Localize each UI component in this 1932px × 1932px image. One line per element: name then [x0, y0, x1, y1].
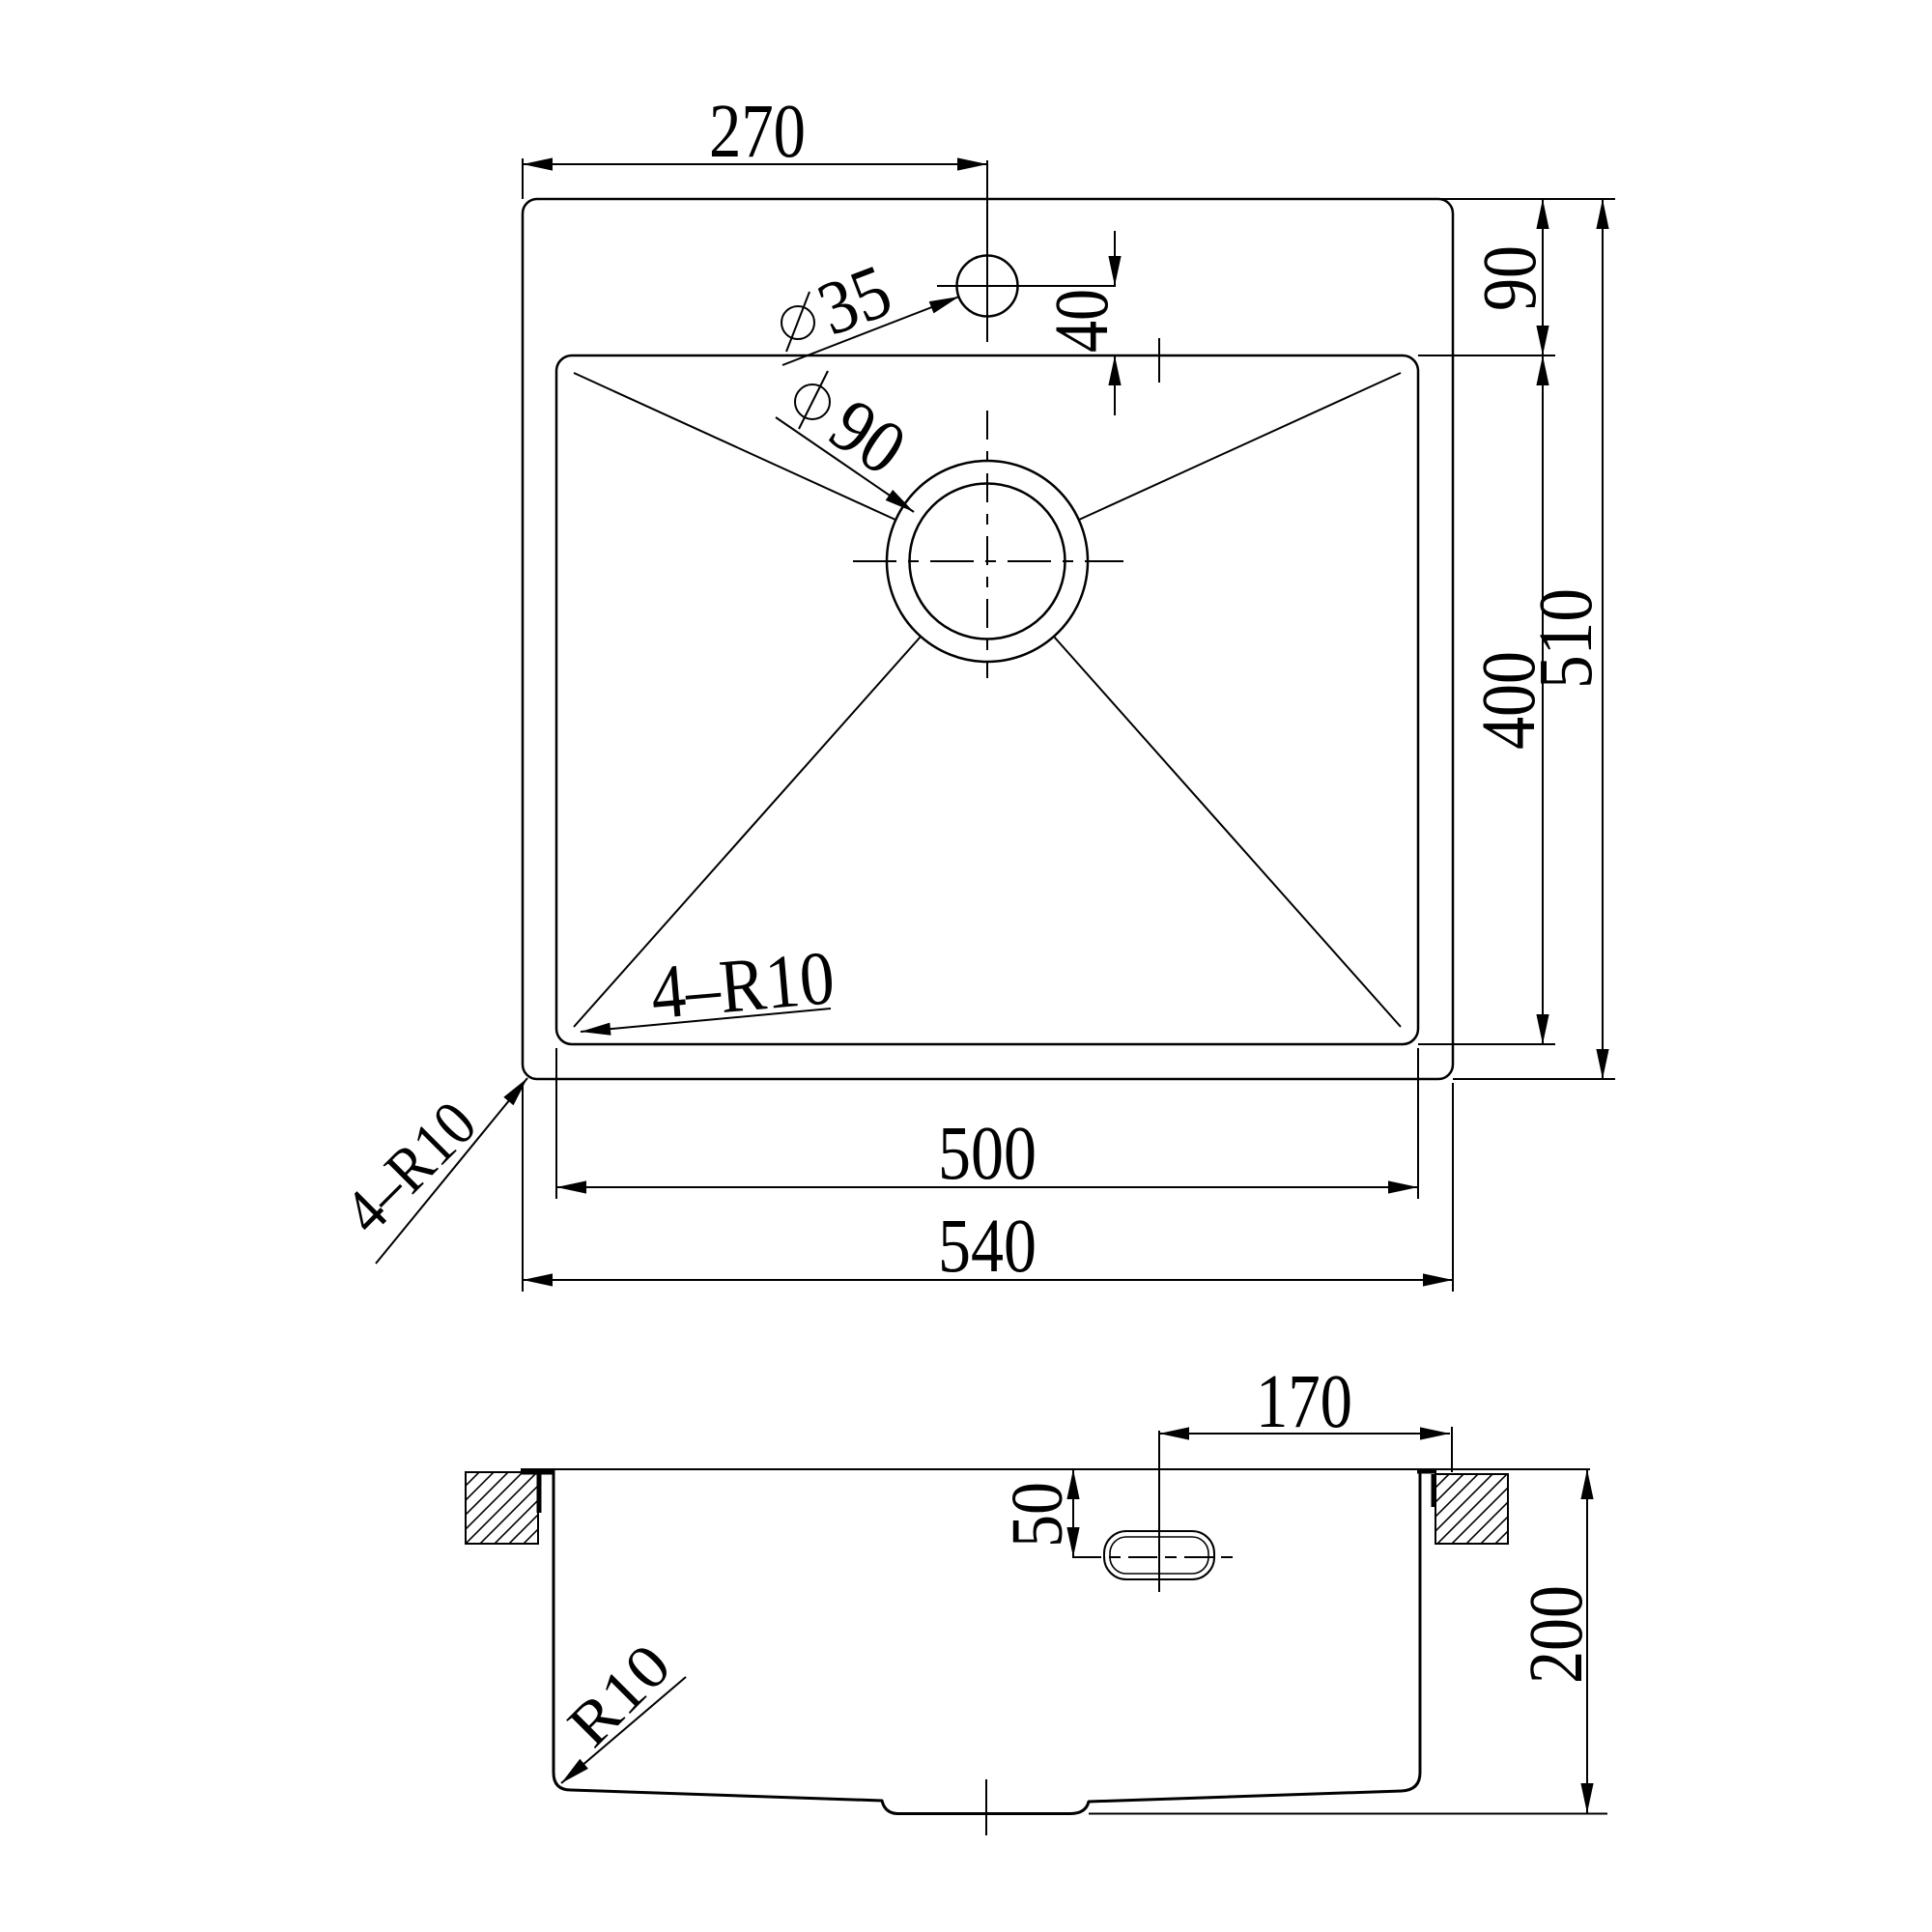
- svg-text:170: 170: [1256, 1360, 1352, 1444]
- svg-text:270: 270: [709, 90, 806, 174]
- svg-text:500: 500: [938, 1112, 1037, 1196]
- svg-text:540: 540: [938, 1205, 1037, 1289]
- svg-text:200: 200: [1515, 1585, 1599, 1684]
- svg-text:510: 510: [1524, 588, 1608, 689]
- svg-text:40: 40: [1040, 289, 1124, 353]
- svg-text:50: 50: [997, 1482, 1078, 1548]
- svg-text:4–R10: 4–R10: [647, 936, 838, 1036]
- svg-text:90: 90: [1468, 245, 1552, 311]
